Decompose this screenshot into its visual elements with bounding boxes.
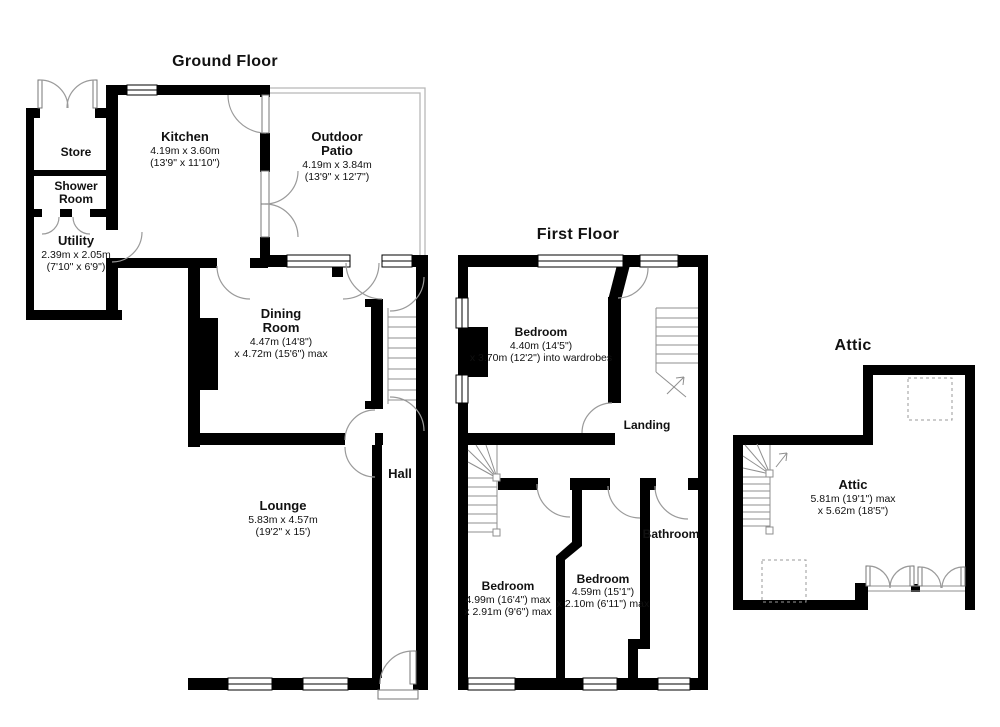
rear-hall-door-arc-a (343, 263, 379, 299)
kitchen-label: Kitchen (161, 129, 209, 144)
shower-room-label-2: Room (59, 192, 93, 206)
attic-labels: Attic 5.81m (19'1") max x 5.62m (18'5") (810, 477, 896, 517)
bedroom-left-dims-1: 4.99m (16'4") max (465, 594, 551, 606)
bedroom-left-window (468, 678, 515, 690)
bedroom-rear-dims-2: x 3.70m (12'2") into wardrobes (470, 352, 612, 364)
dining-label-1: Dining (261, 306, 301, 321)
dining-window-right (382, 255, 412, 267)
dining-hall-door-arc (345, 410, 375, 440)
attic-stairs-direction-arrow (776, 453, 787, 467)
ground-floor-plan: Ground Floor (26, 53, 428, 699)
west-recess-window-top (456, 298, 468, 328)
bedroom-rear-label: Bedroom (515, 325, 568, 339)
landing-label: Landing (624, 418, 671, 432)
french-door-top-arc (265, 171, 298, 204)
stairs-direction-arrow (667, 377, 684, 394)
utility-dims-metric: 2.39m x 2.05m (41, 249, 111, 261)
kitchen-window (127, 85, 157, 95)
bedroom-left-dims-2: x 2.91m (9'6") max (464, 606, 552, 618)
kitchen-patio-door-arc (228, 95, 266, 133)
kitchen-dims-metric: 4.19m x 3.60m (150, 145, 220, 157)
attic-door-leaves (866, 566, 965, 586)
french-door-bottom-arc (265, 204, 298, 237)
bedroom-left-label: Bedroom (482, 579, 535, 593)
attic-door-2-left-arc (920, 567, 941, 588)
kitchen-dims-imperial: (13'9" x 11'10") (150, 157, 220, 169)
store-label: Store (61, 145, 92, 159)
lounge-window-right (303, 678, 348, 690)
ground-floor-stairs (388, 308, 416, 404)
bedroom-middle-door-arc (608, 486, 640, 518)
first-floor-plan: First Floor (456, 226, 708, 690)
ground-floor-title: Ground Floor (172, 53, 278, 70)
shower-room-label-1: Shower (54, 179, 98, 193)
attic-dims-1: 5.81m (19'1") max (810, 493, 896, 505)
floorplan-svg: Ground Floor (0, 0, 1000, 727)
shower-door-arc (42, 217, 59, 234)
bedroom-middle-dims-2: x 2.10m (6'11") max (557, 598, 650, 610)
patio-dims-imperial: (13'9" x 12'7") (305, 171, 370, 183)
front-door-arc (380, 651, 413, 684)
patio-dims-metric: 4.19m x 3.84m (302, 159, 372, 171)
dining-dims-1: 4.47m (14'8") (250, 336, 312, 348)
store-door-right-arc (67, 80, 95, 108)
utility-kitchen-door-arc (112, 232, 142, 262)
kitchen-dining-door-arc (217, 266, 250, 299)
landing-window (640, 255, 678, 267)
attic-dims-2: x 5.62m (18'5") (818, 505, 889, 517)
patio-label-1: Outdoor (311, 129, 362, 144)
ground-floor-labels: Store Shower Room Utility 2.39m x 2.05m … (41, 129, 412, 538)
attic-room-label: Attic (839, 477, 868, 492)
first-floor-title: First Floor (537, 226, 619, 243)
bedroom-rear-door-arc (582, 403, 612, 433)
lounge-door-arc (345, 447, 375, 477)
lounge-dims-imperial: (19'2" x 15') (255, 526, 310, 538)
bathroom-window (658, 678, 690, 690)
utility-dims-imperial: (7'10" x 6'9") (47, 261, 106, 273)
first-floor-stairwell (468, 445, 500, 536)
attic-title: Attic (834, 337, 871, 354)
attic-stairs (743, 444, 787, 534)
skylight-top (908, 378, 952, 420)
utility-door-arc (73, 217, 90, 234)
bedroom-left-door-arc (537, 484, 570, 517)
bedroom-middle-window (583, 678, 617, 690)
lounge-window-left (228, 678, 272, 690)
store-door-left-arc (40, 80, 68, 108)
bedroom-rear-window (538, 255, 623, 267)
attic-door-1-right-arc (890, 566, 912, 588)
skylight-bottom (762, 560, 806, 602)
bedroom-middle-dims-1: 4.59m (15'1") (572, 586, 634, 598)
utility-label: Utility (58, 233, 95, 248)
attic-door-2-right-arc (942, 567, 963, 588)
lounge-dims-metric: 5.83m x 4.57m (248, 514, 318, 526)
dining-window-left (287, 255, 350, 267)
bedroom-rear-dims-1: 4.40m (14'5") (510, 340, 572, 352)
lounge-label: Lounge (260, 498, 307, 513)
bathroom-door-arc (655, 486, 688, 519)
first-floor-labels: Bedroom 4.40m (14'5") x 3.70m (12'2") in… (464, 325, 699, 618)
bathroom-label: Bathroom (643, 527, 700, 541)
bedroom-middle-label: Bedroom (577, 572, 630, 586)
floorplan-canvas: Ground Floor (0, 0, 1000, 727)
hall-label: Hall (388, 466, 412, 481)
west-recess-window-bottom (456, 375, 468, 403)
patio-label-2: Patio (321, 143, 353, 158)
attic-stairs-first-floor (656, 308, 698, 397)
attic-door-1-left-arc (868, 566, 890, 588)
attic-plan: Attic (733, 337, 975, 610)
dining-dims-2: x 4.72m (15'6") max (234, 348, 328, 360)
dining-label-2: Room (263, 320, 300, 335)
rear-hall-door-arc-b (346, 263, 382, 299)
